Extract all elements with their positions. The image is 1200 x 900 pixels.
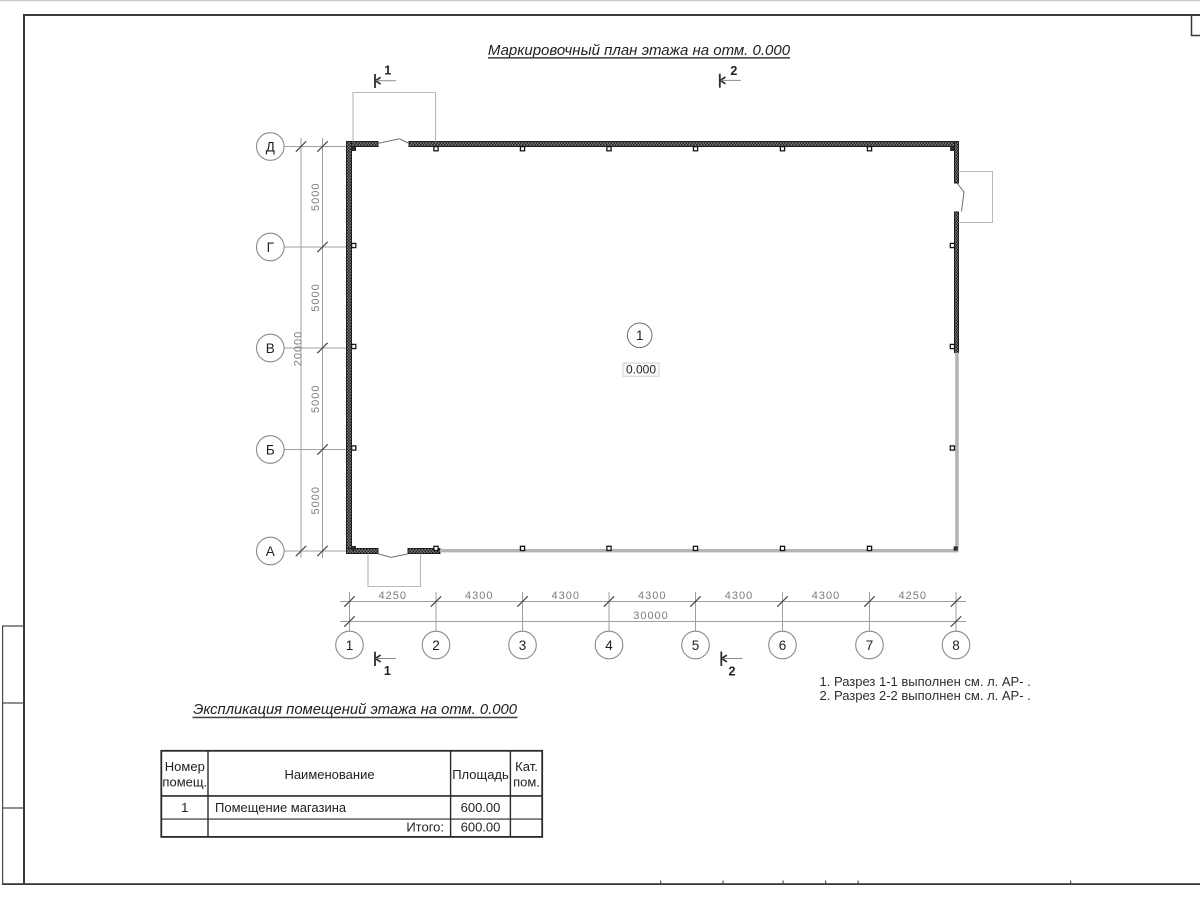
svg-text:2: 2 (730, 64, 737, 78)
svg-text:4300: 4300 (465, 590, 493, 602)
svg-text:20000: 20000 (293, 331, 305, 367)
svg-text:Площадь: Площадь (452, 767, 509, 782)
svg-text:600.00: 600.00 (461, 820, 501, 835)
svg-text:4300: 4300 (552, 590, 580, 602)
svg-text:3: 3 (519, 638, 527, 653)
svg-text:30000: 30000 (633, 610, 669, 622)
svg-text:Г: Г (267, 240, 275, 255)
svg-text:Кат.: Кат. (515, 759, 538, 774)
svg-text:Маркировочный план этажа на от: Маркировочный план этажа на отм. 0.000 (488, 42, 791, 59)
svg-text:5000: 5000 (310, 385, 322, 413)
svg-text:Д: Д (266, 139, 275, 154)
svg-text:600.00: 600.00 (461, 800, 501, 815)
svg-text:1: 1 (384, 664, 391, 678)
svg-text:Экспликация помещений этажа на: Экспликация помещений этажа на отм. 0.00… (193, 702, 518, 718)
svg-text:6: 6 (779, 638, 787, 653)
svg-text:2: 2 (729, 665, 736, 679)
svg-text:5000: 5000 (310, 183, 322, 211)
svg-text:4300: 4300 (725, 590, 753, 602)
svg-text:5: 5 (692, 638, 700, 653)
svg-text:1. Разрез 1-1 выполнен см. л.: 1. Разрез 1-1 выполнен см. л. АР- . (820, 674, 1031, 689)
svg-text:4250: 4250 (379, 590, 407, 602)
svg-text:1: 1 (346, 638, 354, 653)
svg-text:8: 8 (952, 638, 960, 653)
svg-text:4300: 4300 (812, 590, 840, 602)
svg-text:4: 4 (605, 638, 613, 653)
svg-text:7: 7 (866, 638, 874, 653)
svg-text:пом.: пом. (513, 775, 540, 790)
svg-text:Наименование: Наименование (284, 767, 374, 782)
svg-text:4300: 4300 (638, 590, 666, 602)
svg-text:Б: Б (266, 442, 275, 457)
svg-text:В: В (266, 341, 275, 356)
svg-text:Номер: Номер (165, 759, 205, 774)
svg-text:2: 2 (432, 638, 440, 653)
svg-text:Помещение магазина: Помещение магазина (215, 800, 347, 815)
svg-text:1: 1 (181, 800, 188, 815)
svg-text:1: 1 (384, 64, 391, 78)
svg-text:помещ.: помещ. (162, 775, 207, 790)
svg-text:5000: 5000 (310, 486, 322, 514)
svg-text:А: А (266, 544, 275, 559)
svg-text:0.000: 0.000 (626, 363, 656, 377)
svg-text:Итого:: Итого: (406, 820, 444, 835)
svg-text:1: 1 (636, 328, 644, 343)
svg-text:4250: 4250 (899, 590, 927, 602)
svg-text:2. Разрез 2-2 выполнен см. л.: 2. Разрез 2-2 выполнен см. л. АР- . (820, 688, 1031, 703)
svg-text:5000: 5000 (310, 283, 322, 311)
